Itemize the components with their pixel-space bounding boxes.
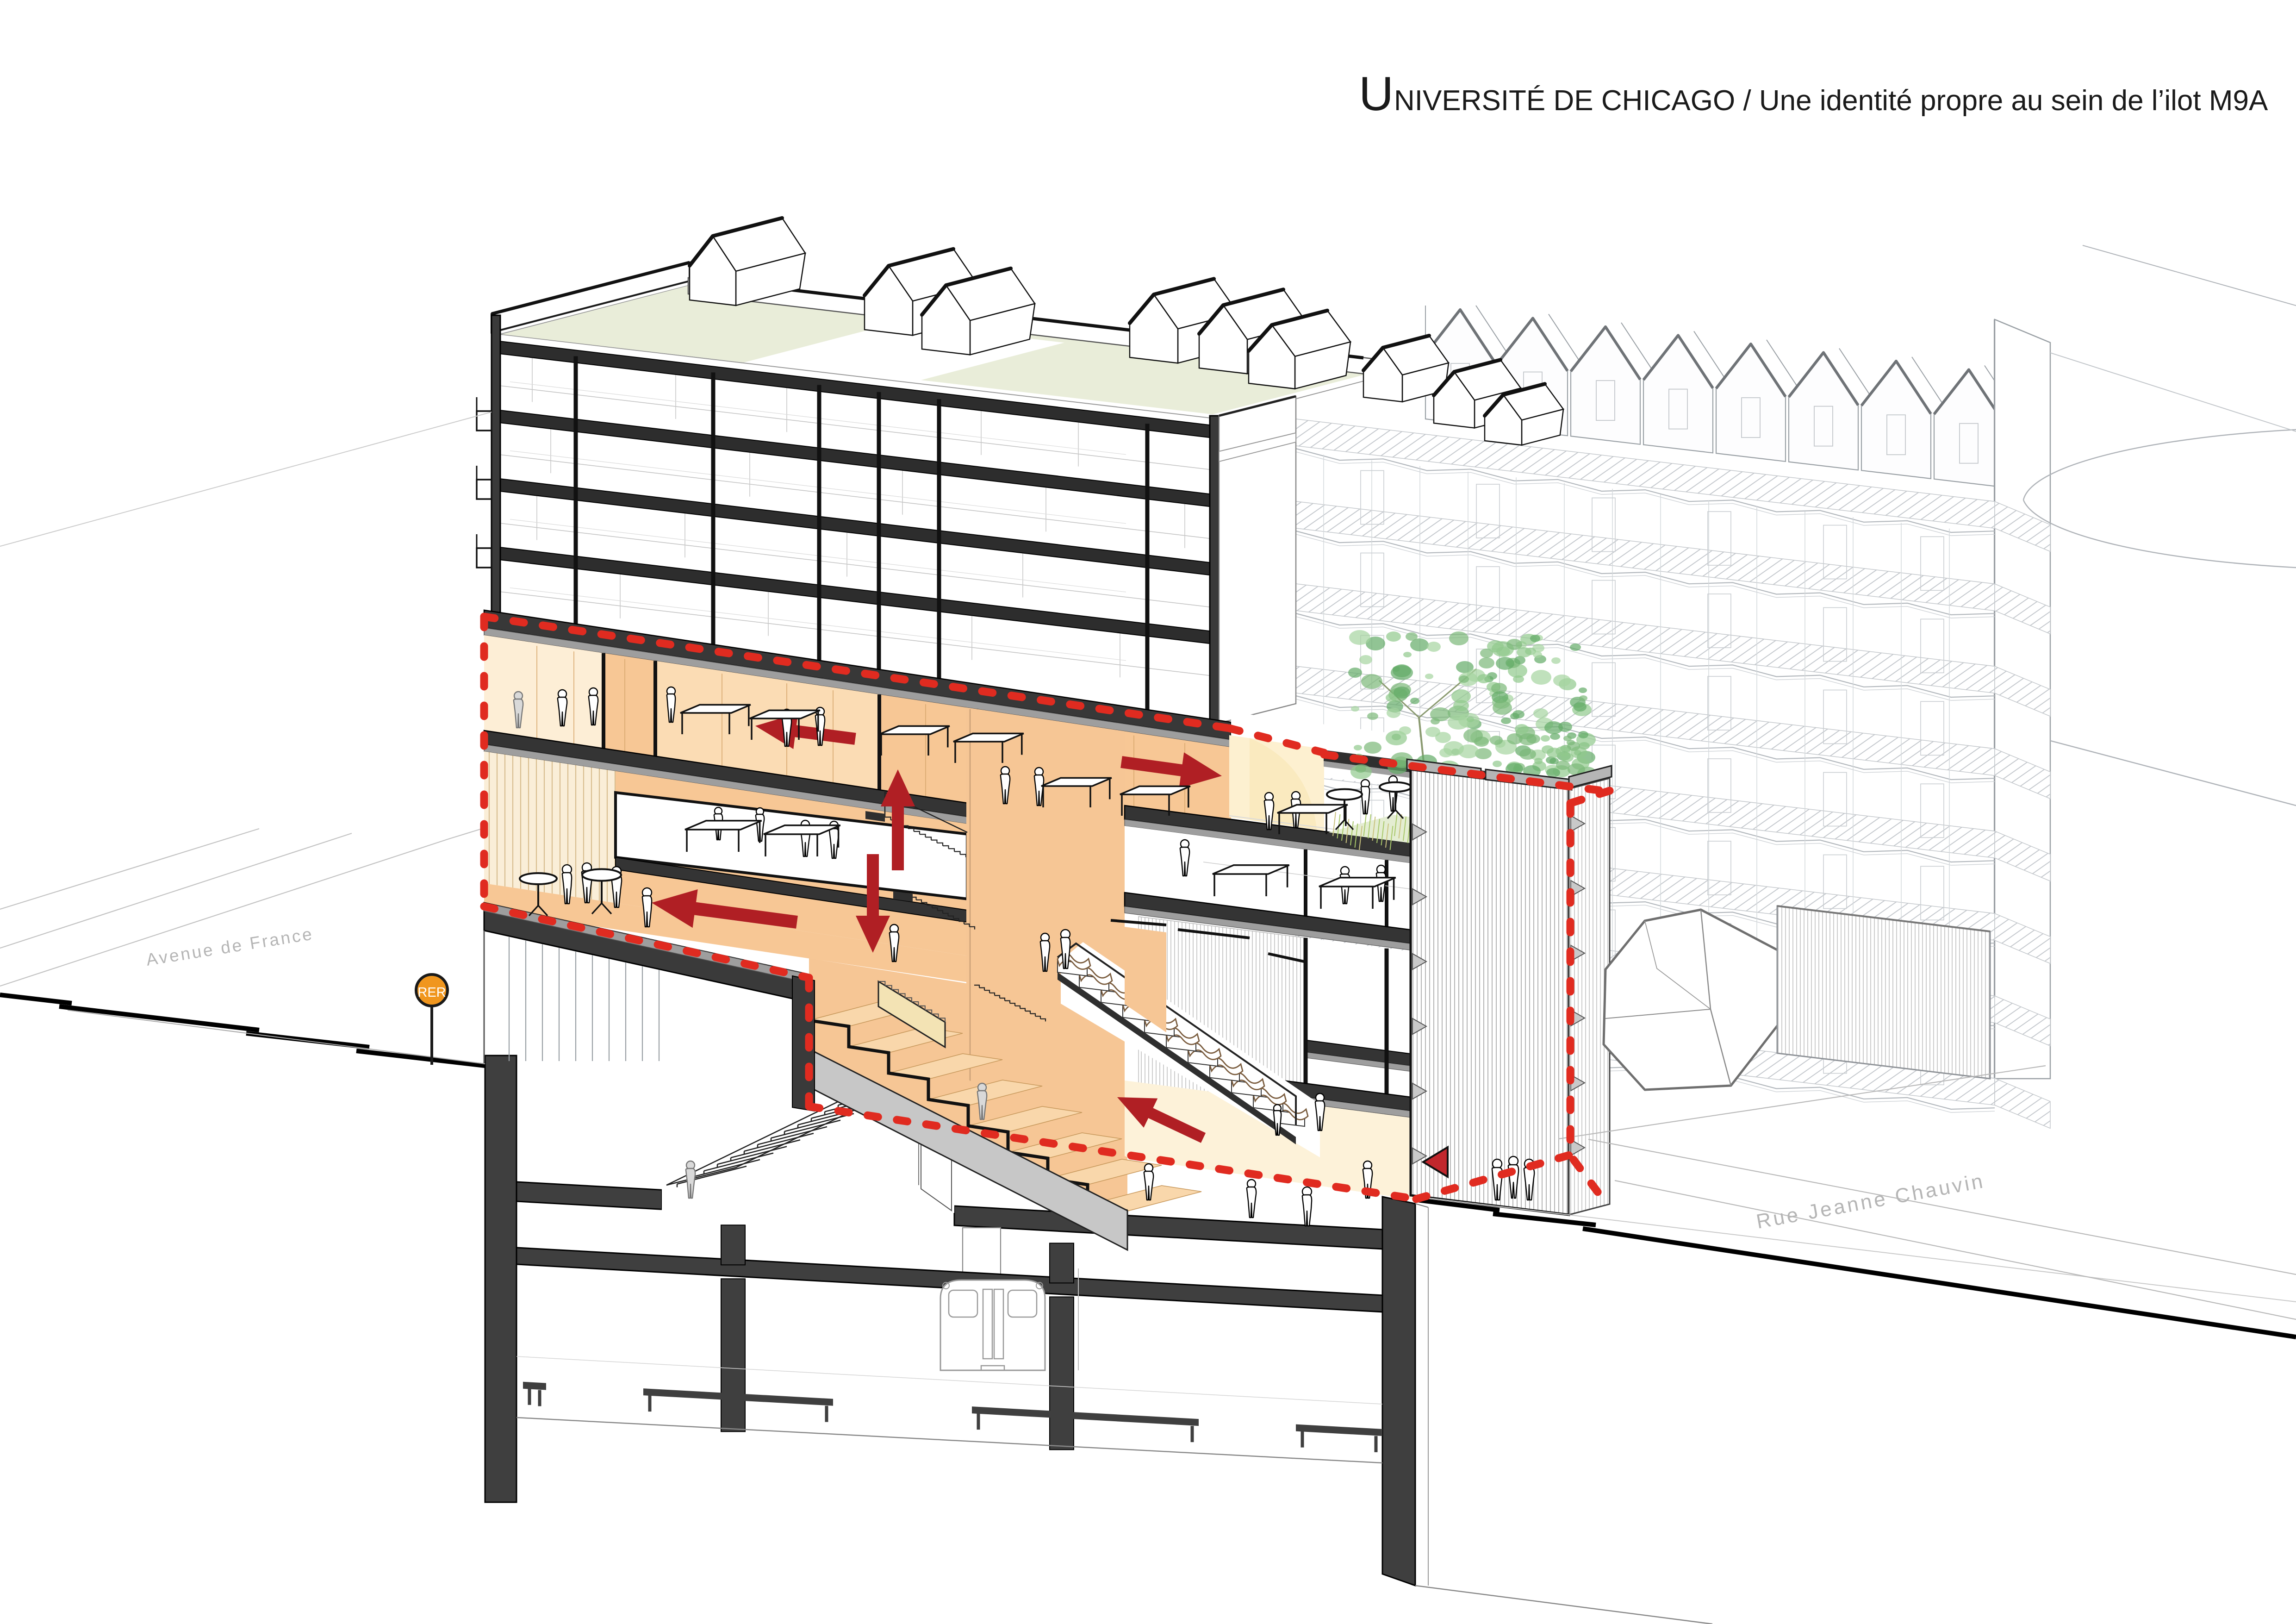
svg-text:U: U [1359,67,1394,121]
svg-text:NIVERSITÉ DE CHICAGO / Une ide: NIVERSITÉ DE CHICAGO / Une identité prop… [1394,85,2268,117]
svg-text:RER: RER [417,985,446,1000]
